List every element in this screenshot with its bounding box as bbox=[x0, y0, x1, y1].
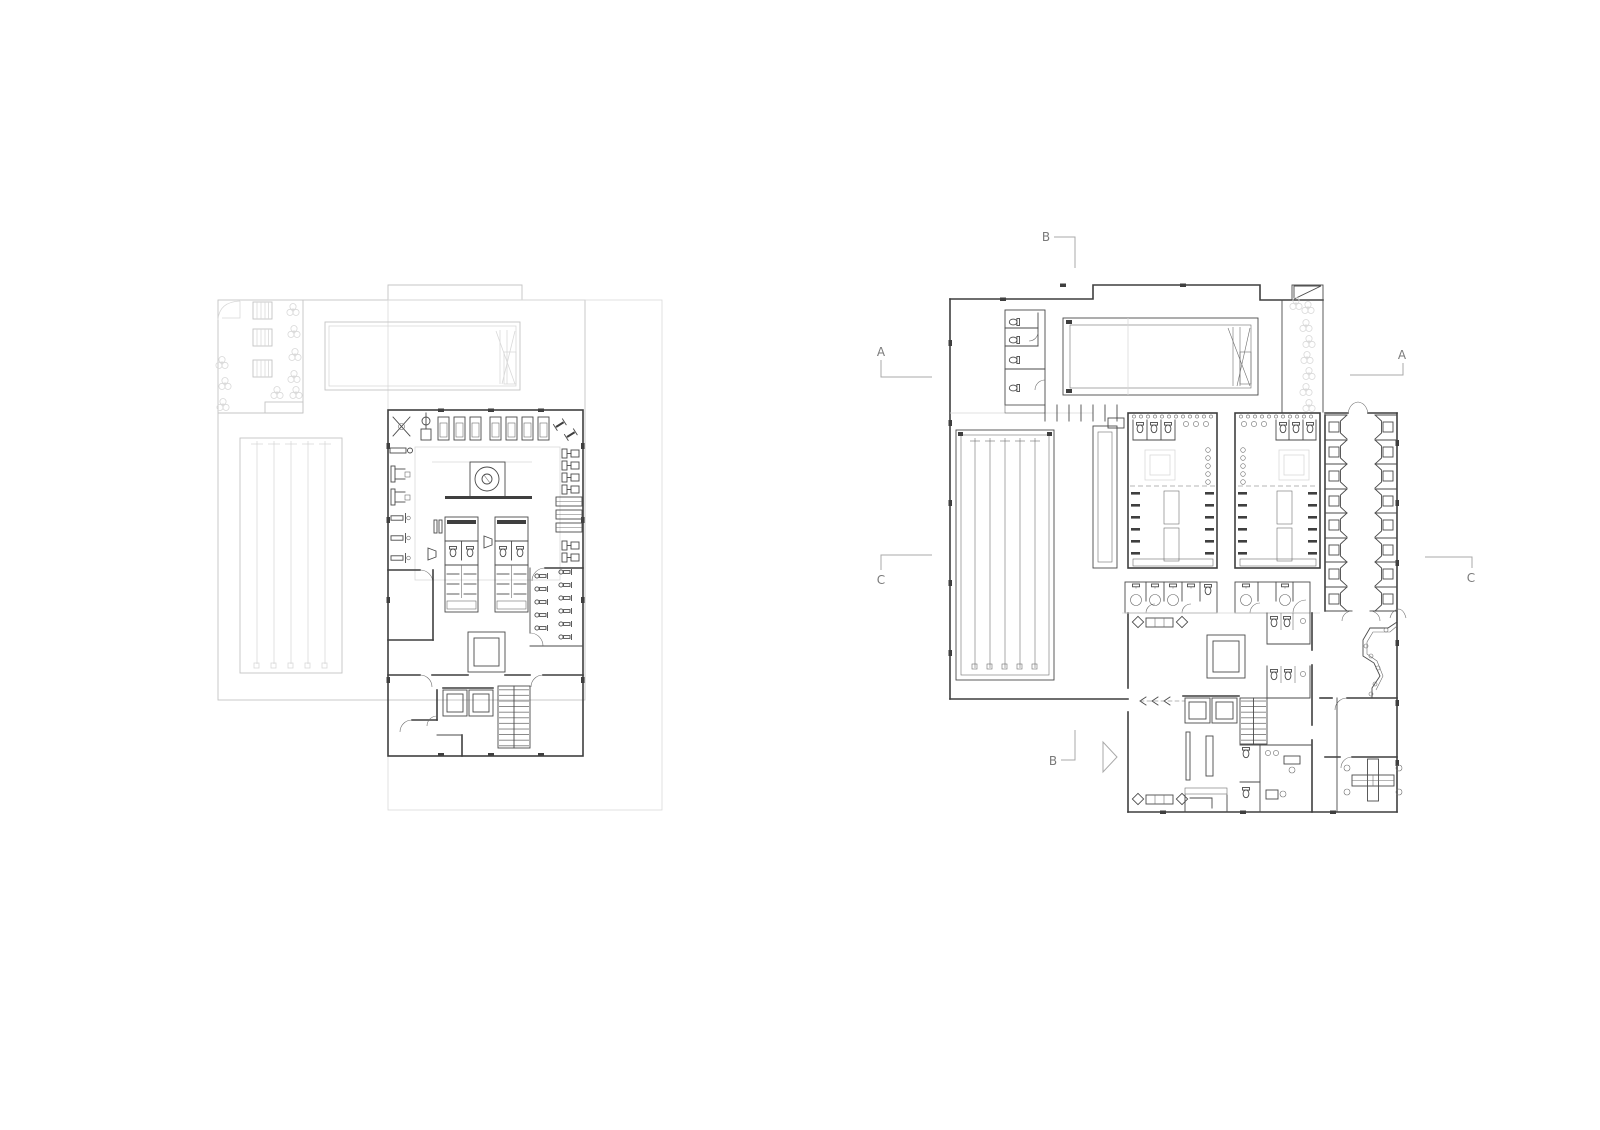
bench-icon bbox=[1132, 793, 1187, 804]
dumbbell-icon bbox=[553, 419, 577, 441]
barbell-rack-icon bbox=[428, 520, 492, 560]
treadmill-icon bbox=[438, 417, 549, 440]
elevator-icon bbox=[443, 688, 493, 716]
gym-lower-core bbox=[388, 675, 583, 756]
section-marker-a-left: A bbox=[877, 345, 932, 377]
wc-room-lower bbox=[1267, 666, 1310, 698]
gym-machines-left bbox=[390, 448, 413, 563]
wc-room-upper bbox=[1267, 613, 1310, 644]
outdoor-pool-roof bbox=[325, 322, 520, 390]
changing-cabins bbox=[1325, 402, 1397, 621]
office-desk-cluster-icon bbox=[1344, 759, 1402, 801]
shower-row-2 bbox=[1235, 582, 1310, 613]
pool-wc-block bbox=[1005, 310, 1045, 413]
lap-pool bbox=[956, 430, 1054, 680]
shop-counter bbox=[1185, 795, 1227, 812]
shower-row-1 bbox=[1125, 582, 1217, 613]
section-label: A bbox=[1398, 348, 1407, 362]
upper-floor-plan bbox=[216, 285, 662, 810]
indoor-pool bbox=[1063, 318, 1258, 395]
elevator-icon bbox=[1183, 696, 1239, 723]
plan-sheet: B A A C C B bbox=[0, 0, 1600, 1130]
section-marker-b-top: B bbox=[1042, 230, 1075, 268]
wall-piers bbox=[387, 409, 585, 757]
entrance-arrow-icon bbox=[1140, 697, 1185, 705]
gym-floor bbox=[387, 409, 585, 757]
section-marker-c-left: C bbox=[877, 555, 932, 587]
gym-partitions bbox=[388, 568, 583, 640]
ground-floor-plan bbox=[949, 284, 1407, 815]
changing-room-1 bbox=[1128, 413, 1217, 568]
site-lap-pool bbox=[240, 438, 342, 673]
floor-plans-drawing: B A A C C B bbox=[0, 0, 1600, 1130]
office-rooms bbox=[1320, 698, 1402, 812]
spiral-stair-icon bbox=[432, 462, 532, 499]
entrance-arrow-icon bbox=[1103, 742, 1117, 772]
atrium-planter bbox=[1207, 635, 1245, 678]
entrance-lobby bbox=[1122, 613, 1320, 812]
site-boundary bbox=[218, 285, 662, 810]
bench-icon bbox=[1132, 616, 1187, 627]
stair-icon bbox=[1240, 698, 1267, 744]
sauna-block-left bbox=[445, 517, 478, 612]
cable-cross-icon bbox=[393, 417, 410, 436]
entry-mat bbox=[1185, 788, 1227, 794]
exercise-bike-icon bbox=[562, 449, 579, 562]
changing-room-2 bbox=[1235, 413, 1320, 568]
section-label: C bbox=[1467, 571, 1475, 585]
cloakroom-wall bbox=[1363, 609, 1406, 697]
section-label: B bbox=[1042, 230, 1050, 244]
bleacher-bench bbox=[1093, 418, 1124, 568]
tree-icon bbox=[216, 304, 302, 411]
section-markers: B A A C C B bbox=[877, 230, 1475, 772]
section-marker-b-bottom: B bbox=[1049, 730, 1075, 768]
section-label: B bbox=[1049, 754, 1057, 768]
building-shell bbox=[949, 284, 1400, 815]
section-marker-c-right: C bbox=[1425, 557, 1475, 585]
atrium-void bbox=[468, 632, 505, 672]
section-marker-a-right: A bbox=[1350, 348, 1407, 375]
section-label: C bbox=[877, 573, 885, 587]
section-label: A bbox=[877, 345, 886, 359]
sauna-block-right bbox=[495, 517, 528, 612]
smith-machine-icon bbox=[421, 413, 431, 440]
tree-icon bbox=[1290, 298, 1315, 412]
reception-desk-icon bbox=[1186, 732, 1213, 780]
stair-icon bbox=[498, 686, 530, 748]
